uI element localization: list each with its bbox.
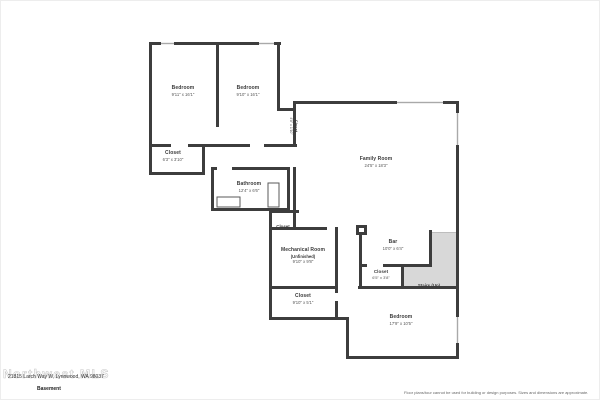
windows	[161, 43, 458, 343]
disclaimer-text: Floor plans/tour cannot be used for buil…	[404, 390, 574, 395]
bathroom-fixtures	[217, 183, 279, 207]
floor-level-label: Basement	[37, 386, 61, 392]
column-post	[356, 225, 367, 235]
walls	[149, 42, 459, 359]
property-address: 21815 Larch Way W, Lynnwood, WA 98037	[8, 374, 104, 380]
floorplan-drawing	[1, 1, 600, 400]
floorplan-canvas: Bedroom 9'11" x 16'1" Bedroom 9'10" x 16…	[0, 0, 600, 400]
